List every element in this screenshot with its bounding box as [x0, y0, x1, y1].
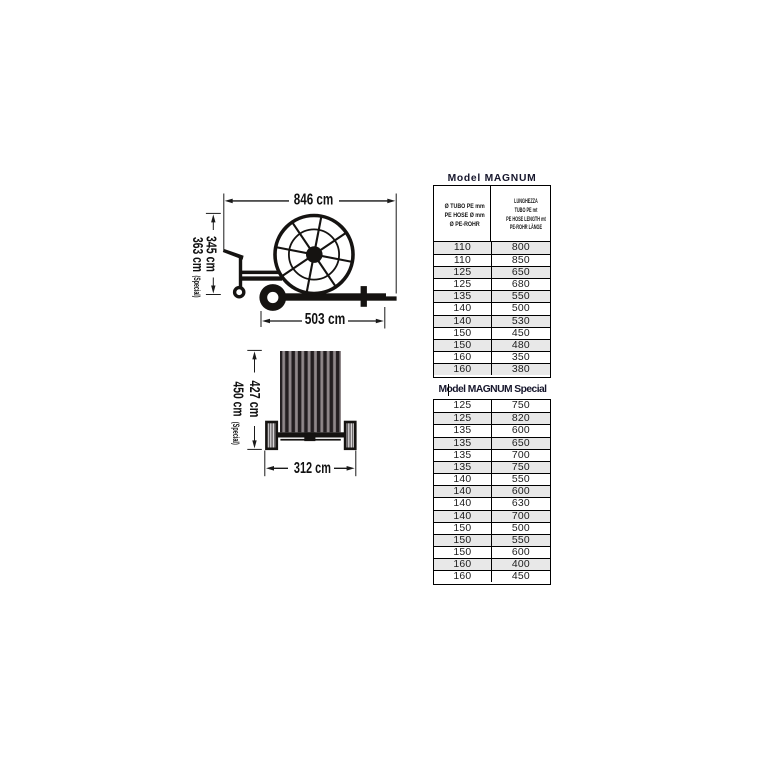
- svg-text:363 cm: 363 cm: [189, 237, 205, 272]
- svg-text:450 cm: 450 cm: [230, 382, 246, 417]
- svg-text:846 cm: 846 cm: [294, 192, 334, 209]
- svg-text:(Special): (Special): [231, 422, 241, 445]
- svg-text:503 cm: 503 cm: [305, 311, 346, 328]
- svg-text:(Special): (Special): [192, 276, 202, 298]
- svg-text:427 cm: 427 cm: [246, 381, 262, 418]
- svg-text:312 cm: 312 cm: [294, 460, 331, 477]
